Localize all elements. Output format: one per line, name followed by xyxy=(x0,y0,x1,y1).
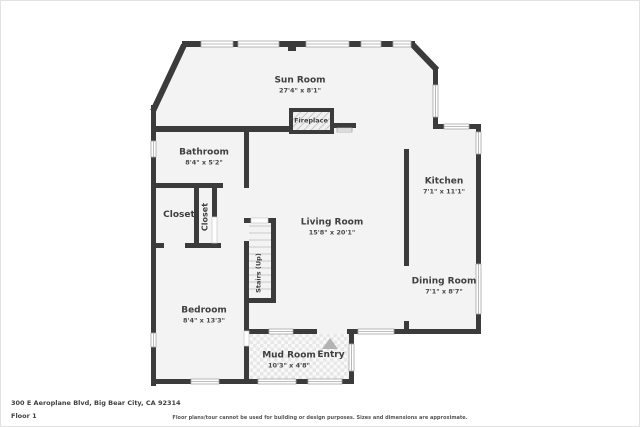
room-label-living-room: Living Room 15'8" x 20'1" xyxy=(301,217,363,238)
room-dims: 8'4" x 5'2" xyxy=(179,159,229,168)
floorplan-canvas: Sun Room 27'4" x 8'1" Fireplace Bathroom… xyxy=(0,0,640,427)
room-name: Mud Room xyxy=(262,350,316,362)
room-dims: 10'3" x 4'8" xyxy=(262,362,316,371)
room-label-bedroom: Bedroom 8'4" x 13'3" xyxy=(181,305,227,326)
room-dims: 15'8" x 20'1" xyxy=(301,229,363,238)
room-dims: 7'1" x 8'7" xyxy=(412,288,477,297)
address-text: 300 E Aeroplane Blvd, Big Bear City, CA … xyxy=(11,399,181,407)
room-name: Closet xyxy=(163,209,195,221)
room-label-fireplace: Fireplace xyxy=(294,117,328,126)
room-label-kitchen: Kitchen 7'1" x 11'1" xyxy=(423,176,465,197)
room-name: Entry xyxy=(317,349,344,361)
room-dims: 8'4" x 13'3" xyxy=(181,317,227,326)
room-name: Bedroom xyxy=(181,305,227,317)
room-name: Kitchen xyxy=(423,176,465,188)
room-label-sun-room: Sun Room 27'4" x 8'1" xyxy=(274,75,325,96)
room-label-mud-room: Mud Room 10'3" x 4'8" xyxy=(262,350,316,371)
room-name: Bathroom xyxy=(179,147,229,159)
room-dims: 27'4" x 8'1" xyxy=(274,87,325,96)
floorplan-drawing xyxy=(1,1,640,427)
room-label-dining-room: Dining Room 7'1" x 8'7" xyxy=(412,276,477,297)
room-dims: 7'1" x 11'1" xyxy=(423,188,465,197)
disclaimer-text: Floor plans/tour cannot be used for buil… xyxy=(172,415,467,421)
room-name: Stairs (Up) xyxy=(255,253,264,293)
floor-number-label: Floor 1 xyxy=(11,412,37,420)
room-name: Closet xyxy=(201,203,212,231)
room-name: Fireplace xyxy=(294,117,328,126)
room-name: Dining Room xyxy=(412,276,477,288)
room-label-entry: Entry xyxy=(317,349,344,361)
room-name: Sun Room xyxy=(274,75,325,87)
room-label-stairs: Stairs (Up) xyxy=(255,253,264,293)
room-label-bathroom: Bathroom 8'4" x 5'2" xyxy=(179,147,229,168)
room-name: Living Room xyxy=(301,217,363,229)
room-label-closet: Closet xyxy=(163,209,195,221)
room-label-closet-inner: Closet xyxy=(201,203,212,231)
